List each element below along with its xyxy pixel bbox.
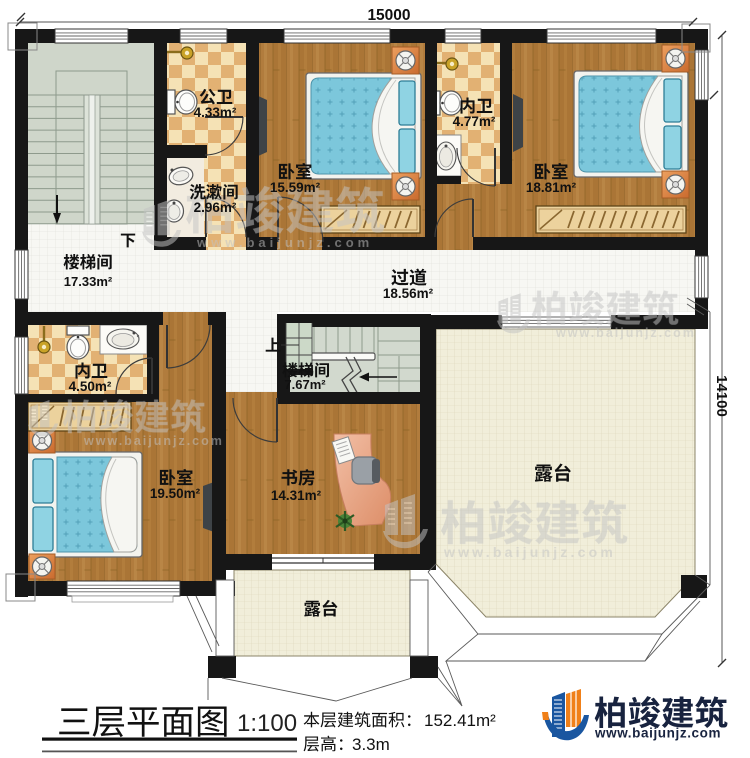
svg-text:14.31m²: 14.31m² [271,488,322,503]
svg-text:www.baijunjz.com: www.baijunjz.com [196,235,373,250]
svg-text:1:100: 1:100 [237,710,297,737]
svg-text:15000: 15000 [367,7,410,24]
svg-text:18.56m²: 18.56m² [383,286,434,301]
svg-text:4.50m²: 4.50m² [69,379,112,394]
svg-text:18.81m²: 18.81m² [526,180,577,195]
svg-text:www.baijunjz.com: www.baijunjz.com [594,726,721,741]
svg-text:14100: 14100 [713,375,730,417]
svg-text:15.59m²: 15.59m² [270,180,321,195]
svg-text:4.33m²: 4.33m² [194,105,237,120]
svg-text:www.baijunjz.com: www.baijunjz.com [555,326,696,340]
svg-text:3.3m: 3.3m [352,735,390,754]
svg-text:2.96m²: 2.96m² [194,200,237,215]
svg-text:152.41m²: 152.41m² [424,711,496,730]
svg-text:4.77m²: 4.77m² [453,114,496,129]
svg-text:www.baijunjz.com: www.baijunjz.com [83,434,224,448]
svg-text:www.baijunjz.com: www.baijunjz.com [443,544,616,560]
svg-text:19.50m²: 19.50m² [150,486,201,501]
svg-text:17.33m²: 17.33m² [64,274,113,289]
svg-text:7.67m²: 7.67m² [284,377,326,392]
